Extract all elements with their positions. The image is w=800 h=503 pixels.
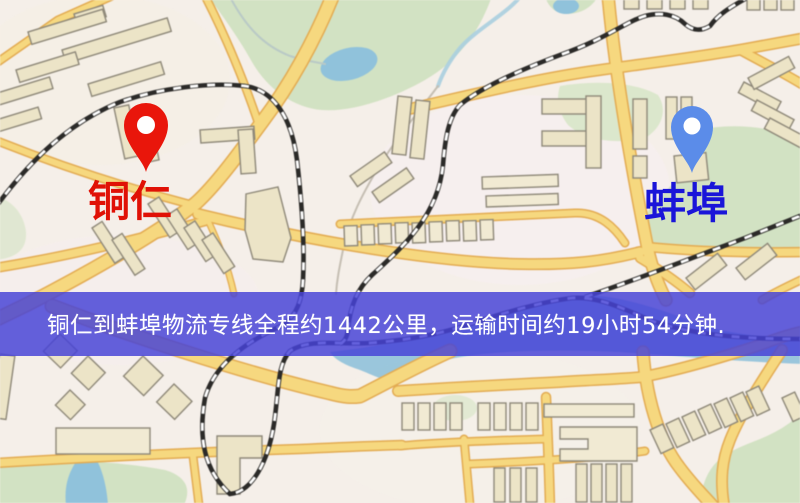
origin-pin-icon[interactable] bbox=[124, 103, 168, 172]
destination-label: 蚌埠 bbox=[644, 179, 728, 228]
destination-pin-icon[interactable] bbox=[671, 106, 713, 173]
logistics-route-map: 铜仁到蚌埠物流专线全程约1442公里，运输时间约19小时54分钟. 铜仁 蚌埠 bbox=[0, 0, 800, 503]
markers-layer: 铜仁 蚌埠 bbox=[0, 0, 800, 503]
origin-label: 铜仁 bbox=[88, 177, 172, 226]
